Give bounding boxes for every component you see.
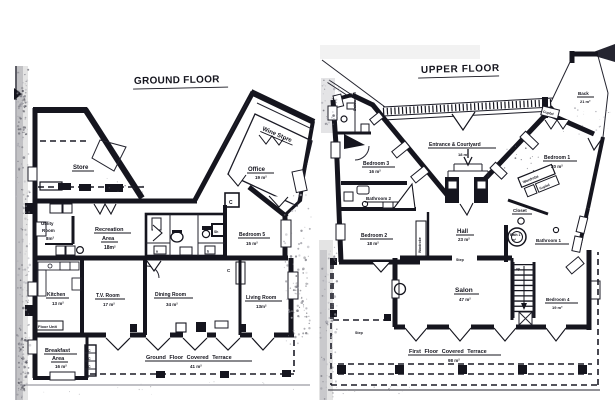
svg-text:Store: Store (73, 165, 89, 171)
svg-text:First Floor Covered Terrace: First Floor Covered Terrace (409, 349, 487, 355)
svg-text:19 m²: 19 m² (255, 175, 267, 180)
svg-text:Recreation: Recreation (95, 227, 124, 233)
svg-text:47 m²: 47 m² (459, 297, 471, 302)
svg-text:Area: Area (102, 236, 115, 242)
svg-text:b: b (207, 250, 209, 254)
svg-text:Bathroom 1: Bathroom 1 (536, 238, 562, 243)
svg-text:Bath 1: Bath 1 (510, 233, 520, 237)
svg-text:Sh: Sh (214, 230, 218, 234)
svg-text:98 m²: 98 m² (448, 358, 460, 363)
svg-text:Bedroom 4: Bedroom 4 (546, 297, 570, 302)
svg-text:GROUND FLOOR: GROUND FLOOR (134, 74, 221, 87)
svg-text:up: up (516, 267, 520, 271)
svg-text:21 m²: 21 m² (580, 99, 591, 104)
svg-text:Bedroom 2: Bedroom 2 (361, 233, 387, 239)
svg-text:Office: Office (248, 167, 266, 173)
svg-text:C: C (229, 200, 233, 206)
svg-text:19 m²: 19 m² (552, 305, 563, 310)
svg-text:Floor Unit: Floor Unit (38, 324, 58, 329)
svg-text:41 m²: 41 m² (190, 364, 202, 369)
svg-text:Ground Floor Covered Terrace: Ground Floor Covered Terrace (146, 355, 232, 361)
svg-text:Area: Area (52, 356, 65, 362)
svg-text:Back: Back (578, 91, 589, 96)
svg-text:Bathroom 3: Bathroom 3 (353, 92, 357, 111)
svg-text:Step: Step (456, 258, 465, 262)
svg-text:13m²: 13m² (256, 304, 267, 309)
svg-text:C: C (88, 357, 91, 361)
svg-text:Bedroom 1: Bedroom 1 (544, 155, 570, 161)
svg-text:23 m²: 23 m² (458, 237, 470, 242)
svg-text:Step: Step (355, 331, 364, 335)
svg-text:Bedroom 3: Bedroom 3 (363, 161, 389, 167)
svg-text:Closet: Closet (513, 208, 527, 213)
svg-text:16 m²: 16 m² (55, 364, 67, 369)
svg-text:Wardrobe: Wardrobe (418, 237, 422, 253)
svg-text:8m²: 8m² (46, 236, 55, 241)
svg-text:18m²: 18m² (104, 245, 116, 251)
svg-text:Utility: Utility (41, 221, 54, 226)
svg-text:Bathroom 2: Bathroom 2 (366, 196, 392, 201)
svg-text:16 m²: 16 m² (369, 169, 381, 174)
svg-text:18 m²: 18 m² (458, 152, 469, 157)
svg-text:Bedroom 5: Bedroom 5 (239, 232, 265, 238)
svg-text:17 m²: 17 m² (103, 302, 115, 307)
svg-text:Breakfast: Breakfast (45, 348, 70, 354)
svg-text:15 m²: 15 m² (246, 241, 258, 246)
svg-text:C: C (88, 349, 91, 353)
svg-text:UPPER FLOOR: UPPER FLOOR (421, 63, 500, 76)
svg-text:Dining Room: Dining Room (155, 292, 187, 298)
svg-text:m²: m² (512, 238, 516, 242)
svg-text:20 m²: 20 m² (551, 164, 563, 169)
svg-text:T.V. Room: T.V. Room (96, 293, 120, 299)
svg-text:13 m²: 13 m² (52, 301, 64, 306)
svg-text:a: a (156, 250, 158, 254)
svg-text:Living Room: Living Room (246, 295, 277, 301)
svg-text:18 m²: 18 m² (367, 241, 379, 246)
svg-text:Entrance & Courtyard: Entrance & Courtyard (429, 142, 481, 148)
svg-text:Kitchen: Kitchen (47, 292, 65, 298)
svg-text:Room: Room (42, 228, 55, 233)
svg-text:Salon: Salon (455, 287, 473, 294)
svg-text:34 m²: 34 m² (166, 302, 178, 307)
svg-text:C: C (88, 365, 91, 369)
svg-text:Hall: Hall (457, 229, 468, 235)
